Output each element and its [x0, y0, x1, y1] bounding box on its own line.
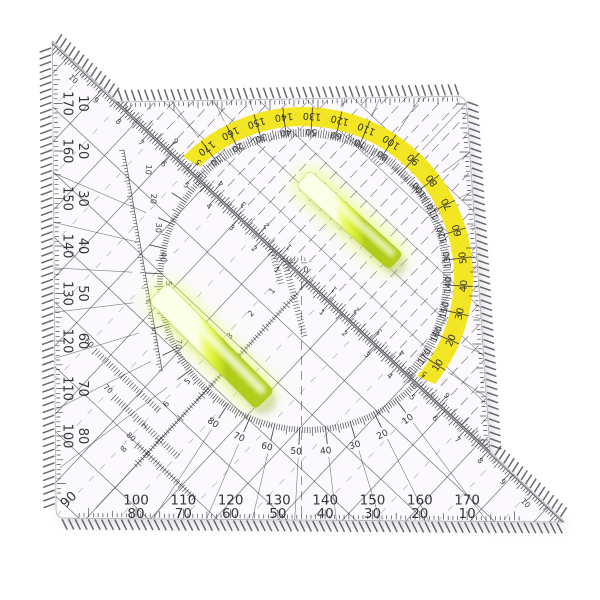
scale-number: 70 [75, 380, 90, 397]
scale-number: 160 [60, 139, 75, 164]
scale-number: 50 [75, 285, 90, 302]
scale-number: 50 [290, 447, 302, 458]
scale-number: 110 [60, 376, 75, 401]
scale-number: 140 [60, 234, 75, 259]
scale-number: 130 [303, 110, 322, 122]
scale-number: 20 [75, 143, 90, 160]
scale-number: 50 [305, 126, 316, 137]
scale-number: 20 [411, 506, 428, 522]
scale-number: 40 [75, 238, 90, 255]
scale-number: 40 [280, 126, 292, 137]
scale-number: 50 [457, 251, 469, 264]
scale-number: 20 [149, 193, 159, 204]
scale-number: 40 [320, 446, 333, 457]
scale-number: 10 [459, 506, 476, 522]
scale-number: 140 [274, 110, 293, 123]
scale-number: 60 [75, 333, 90, 350]
scale-number: 0 [303, 265, 308, 274]
scale-number: 50 [269, 506, 286, 522]
scale-number: 170 [60, 91, 75, 116]
set-squares-graphic: 1020304050607080112233445566778899101012… [0, 0, 600, 600]
scale-number: 100 [60, 424, 75, 449]
photo-canvas: 1020304050607080112233445566778899101012… [0, 0, 600, 600]
scale-number: 80 [75, 428, 90, 445]
scale-number: 10 [144, 164, 154, 175]
scale-number: 130 [60, 281, 75, 306]
scale-number: 40 [159, 252, 169, 263]
scale-number: 140 [443, 277, 454, 294]
scale-number: 30 [75, 190, 90, 207]
scale-number: 120 [60, 329, 75, 354]
scale-number: 30 [154, 222, 164, 233]
scale-number: 130 [442, 251, 454, 268]
scale-number: 150 [60, 186, 75, 211]
scale-number: 40 [317, 506, 334, 522]
scale-number: 30 [364, 506, 381, 522]
scale-number: 40 [458, 280, 470, 293]
scale-number: 10 [75, 95, 90, 112]
